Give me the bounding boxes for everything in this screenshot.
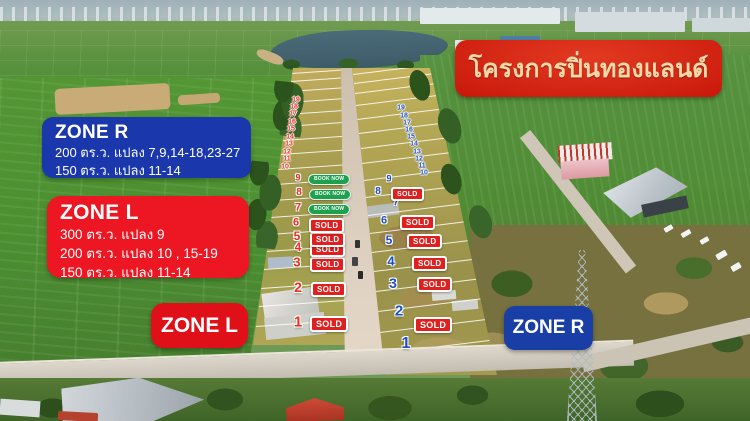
zone-r-info-title: ZONE R bbox=[55, 122, 251, 144]
plot-boundary-line bbox=[374, 259, 474, 273]
info-line: 300 ตร.ว. แปลง 9 bbox=[60, 225, 249, 244]
zone-l-tag: ZONE L bbox=[151, 303, 248, 348]
car bbox=[355, 240, 360, 248]
info-line: 200 ตร.ว. แปลง 7,9,14-18,23-27 bbox=[55, 144, 251, 162]
plot-boundary-line bbox=[380, 319, 487, 333]
info-line: 200 ตร.ว. แปลง 10 , 15-19 bbox=[60, 244, 249, 263]
zone-r-info-lines: 200 ตร.ว. แปลง 7,9,14-18,23-27150 ตร.ว. … bbox=[55, 144, 251, 180]
red-roof-house bbox=[58, 411, 98, 421]
zone-r-tag: ZONE R bbox=[504, 306, 593, 350]
project-title: โครงการปิ่นทองแลนด์ bbox=[469, 49, 709, 89]
tree-line bbox=[269, 80, 306, 137]
pink-building bbox=[560, 158, 609, 179]
car bbox=[358, 271, 363, 279]
plot-boundary-line bbox=[291, 78, 341, 83]
aerial-photo: โครงการปิ่นทองแลนด์ ZONE R 200 ตร.ว. แปล… bbox=[0, 0, 750, 421]
info-line: 150 ตร.ว. แปลง 11-14 bbox=[55, 162, 251, 180]
shed bbox=[432, 290, 457, 301]
gray-roof bbox=[0, 399, 41, 418]
factory-roof bbox=[420, 8, 560, 24]
zone-l-info-box: ZONE L 300 ตร.ว. แปลง 9200 ตร.ว. แปลง 10… bbox=[47, 196, 249, 278]
info-line: 150 ตร.ว. แปลง 11-14 bbox=[60, 263, 249, 282]
zone-r-info-box: ZONE R 200 ตร.ว. แปลง 7,9,14-18,23-27150… bbox=[42, 117, 251, 178]
zone-l-info-lines: 300 ตร.ว. แปลง 9200 ตร.ว. แปลง 10 , 15-1… bbox=[60, 225, 249, 282]
plot-boundary-line bbox=[280, 150, 343, 156]
zone-l-info-title: ZONE L bbox=[60, 201, 249, 225]
project-title-banner: โครงการปิ่นทองแลนด์ bbox=[455, 40, 722, 97]
factory-roof bbox=[575, 12, 685, 32]
factory-roof bbox=[692, 18, 750, 32]
plot-boundary-line bbox=[292, 70, 341, 75]
plot-boundary-line bbox=[376, 279, 478, 293]
car bbox=[352, 257, 358, 266]
